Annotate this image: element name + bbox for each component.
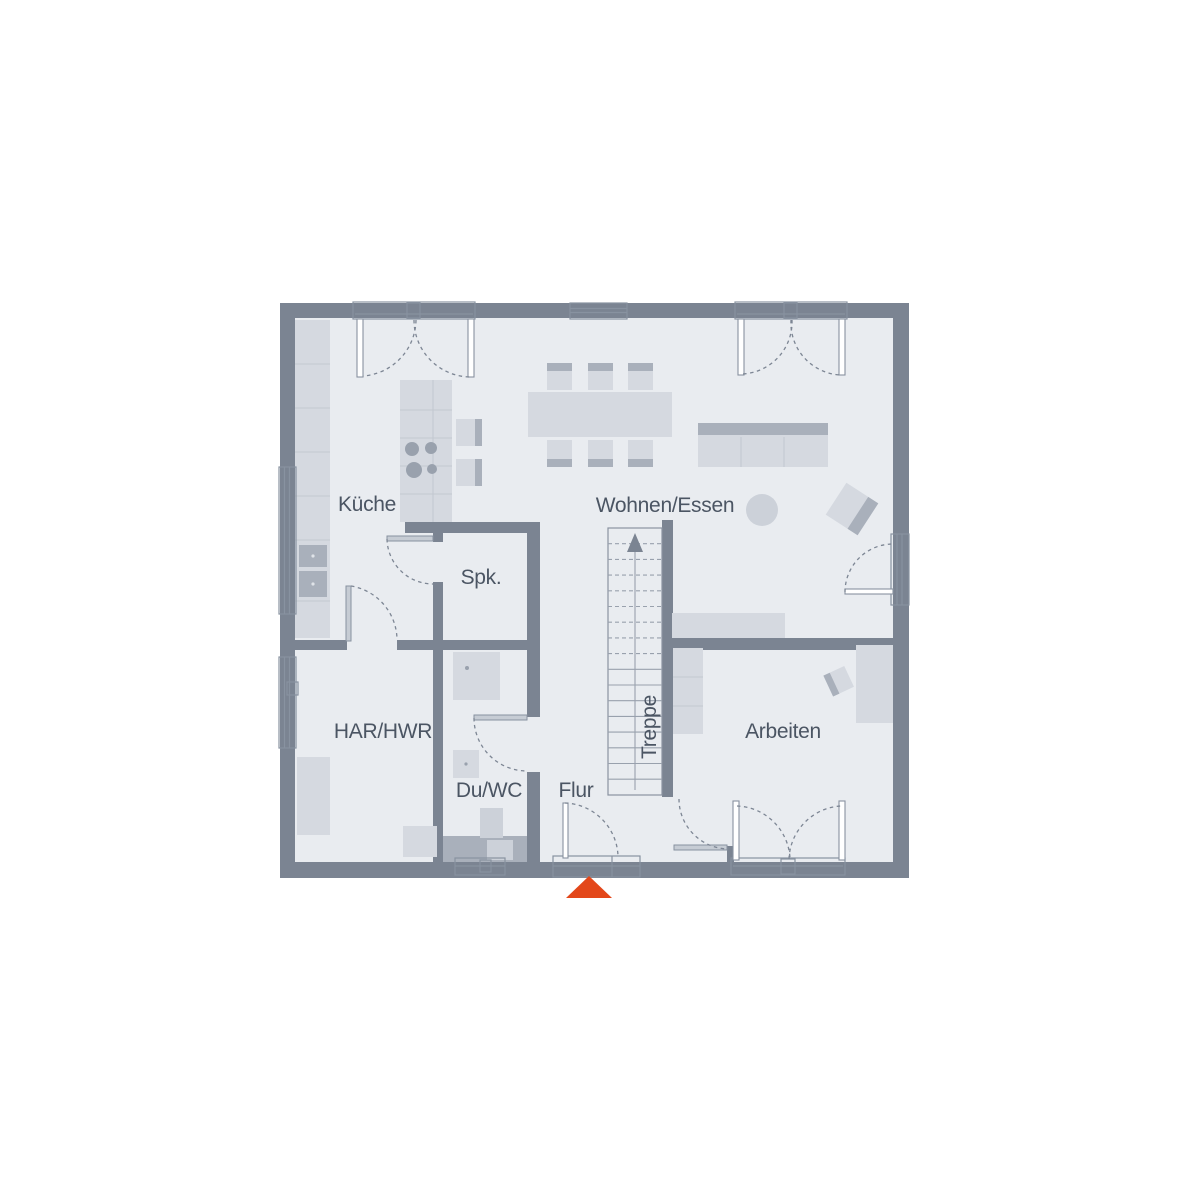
room-label-arbeiten: Arbeiten <box>745 720 821 744</box>
dining-table <box>528 392 672 437</box>
room-label-flur: Flur <box>559 779 594 803</box>
floorplan-canvas: Küche Wohnen/Essen Spk. HAR/HWR Du/WC Fl… <box>0 0 1200 1200</box>
room-label-kueche: Küche <box>338 493 396 517</box>
entrance-arrow <box>566 876 612 898</box>
sideboard <box>672 613 785 638</box>
room-label-du-wc: Du/WC <box>456 779 522 803</box>
coffee-table <box>746 494 778 526</box>
utility-unit <box>403 826 437 857</box>
toilet <box>487 840 513 860</box>
room-label-treppe: Treppe <box>638 695 662 759</box>
shower <box>453 652 500 700</box>
wc-unit <box>480 808 503 838</box>
office-shelf <box>673 648 703 734</box>
kitchen-island <box>400 380 452 522</box>
sofa <box>698 423 828 467</box>
room-label-spk: Spk. <box>461 566 502 590</box>
floorplan-drawing <box>0 0 1200 1200</box>
kitchen-counter <box>295 320 330 638</box>
utility-cabinet <box>297 757 330 835</box>
washbasin <box>453 750 479 778</box>
room-label-wohnen-essen: Wohnen/Essen <box>596 494 734 518</box>
desk <box>856 645 893 723</box>
room-label-har-hwr: HAR/HWR <box>334 720 432 744</box>
